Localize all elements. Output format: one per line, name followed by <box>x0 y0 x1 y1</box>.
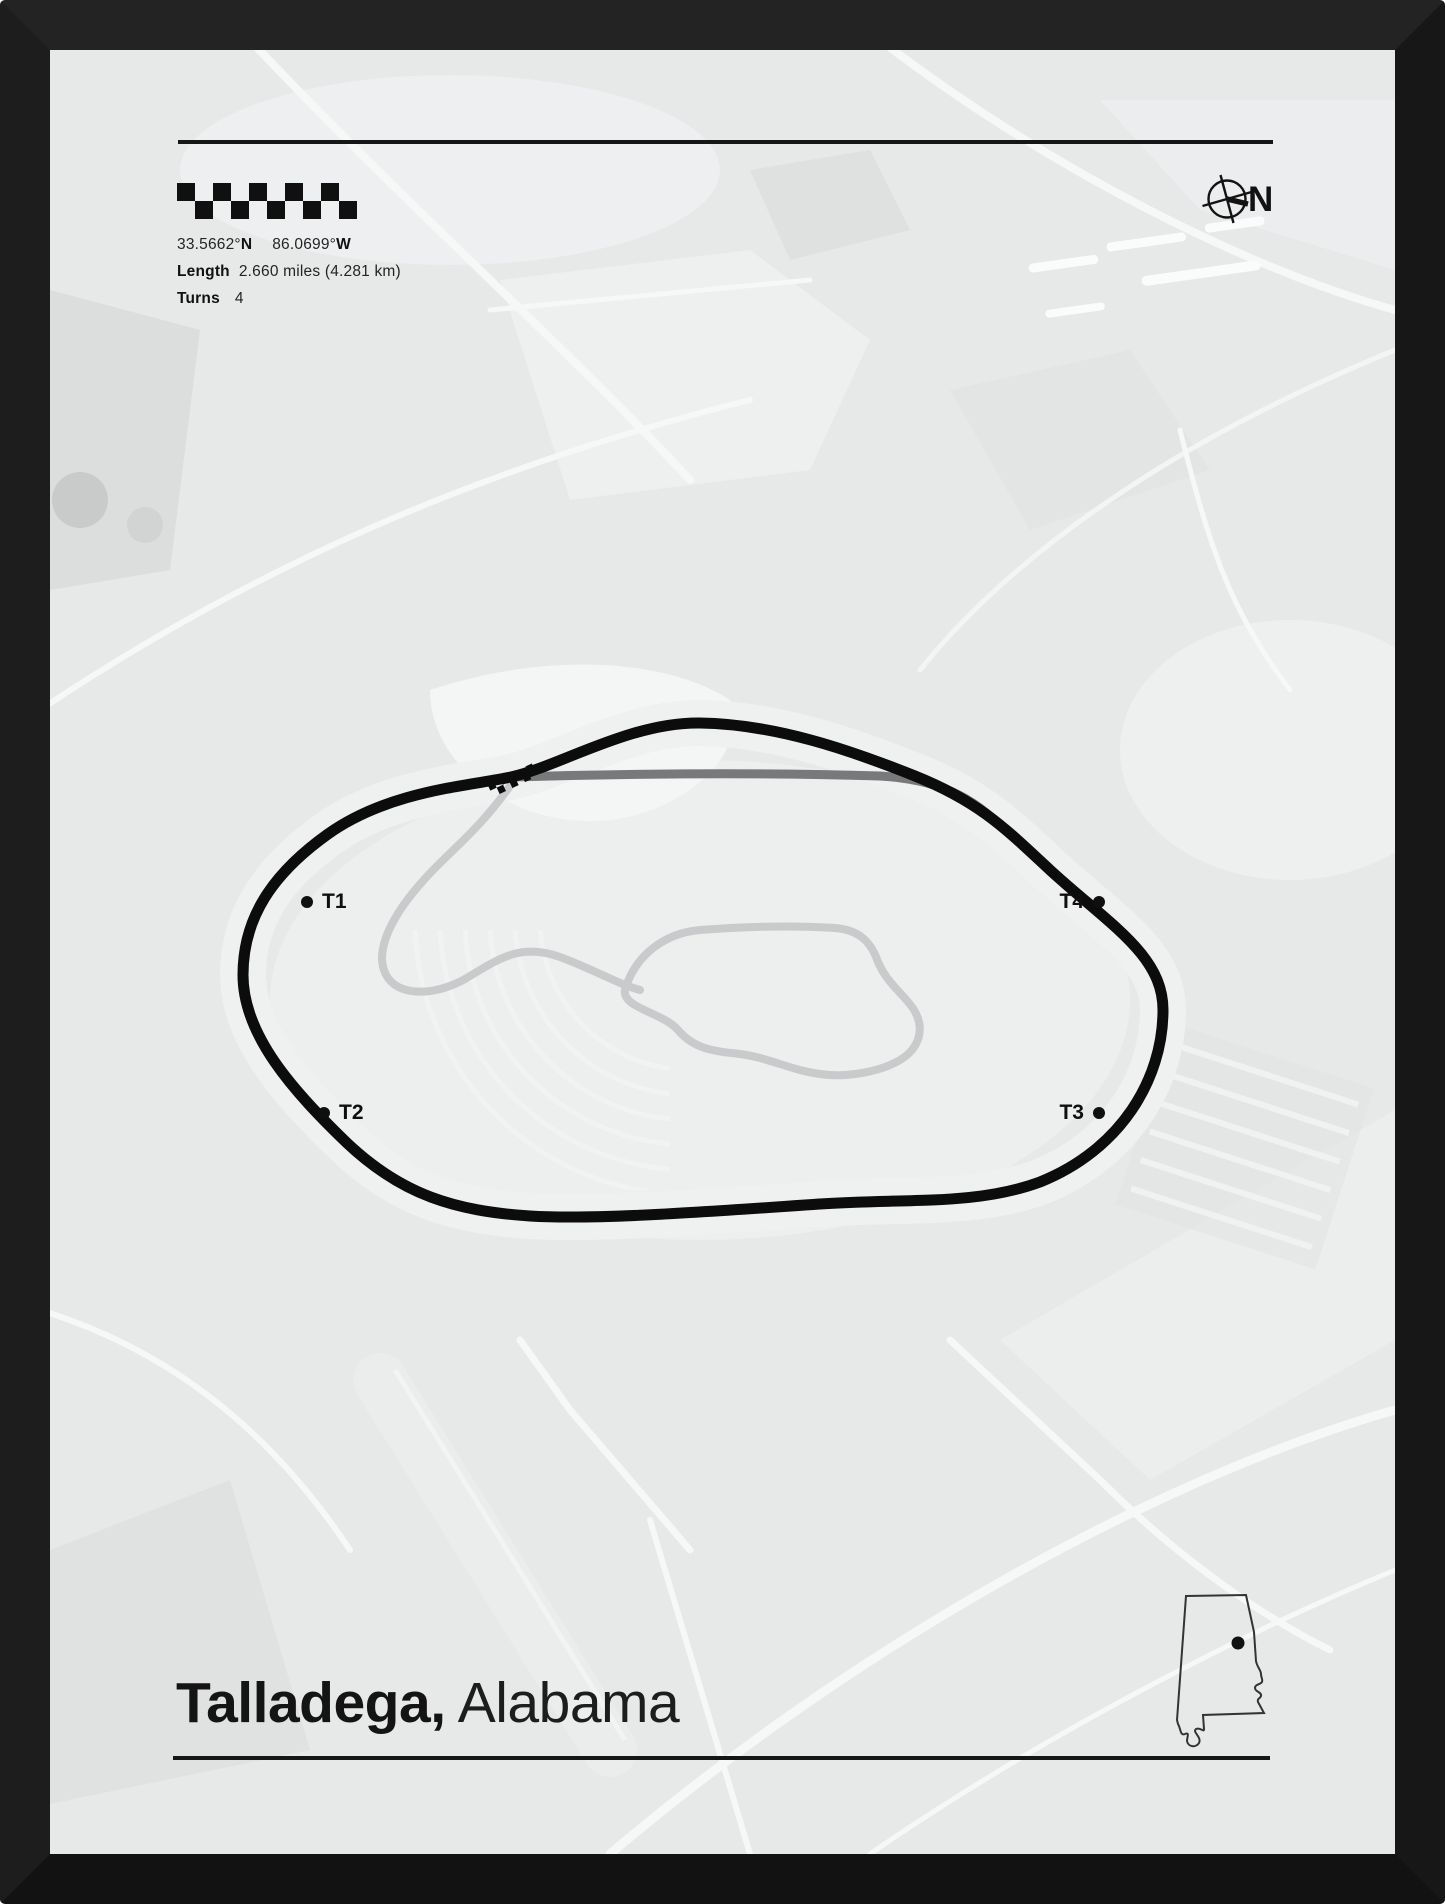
turn-label: T1 <box>322 890 347 914</box>
turns-value: 4 <box>235 290 244 307</box>
length-value: 2.660 miles (4.281 km) <box>239 263 401 280</box>
top-rule <box>178 140 1273 144</box>
length-row: Length2.660 miles (4.281 km) <box>177 258 401 285</box>
turn-marker-t4: T4 <box>1059 890 1105 914</box>
map-background <box>50 50 1395 1854</box>
turn-label: T2 <box>339 1101 364 1125</box>
turns-label: Turns <box>177 290 220 307</box>
turn-marker-t1: T1 <box>301 890 347 914</box>
compass-north-label: N <box>1248 180 1273 220</box>
latitude-value: 33.5662° <box>177 236 241 253</box>
track-stats: 33.5662°N86.0699°W Length2.660 miles (4.… <box>177 231 401 312</box>
title-track-name: Talladega, <box>176 1671 446 1735</box>
turn-marker-t2: T2 <box>318 1101 364 1125</box>
longitude-dir: W <box>336 236 351 253</box>
coordinates-row: 33.5662°N86.0699°W <box>177 231 401 258</box>
length-label: Length <box>177 263 230 280</box>
turn-dot-icon <box>1093 1107 1105 1119</box>
turn-dot-icon <box>301 896 313 908</box>
longitude-value: 86.0699° <box>272 236 336 253</box>
turn-label: T3 <box>1059 1101 1084 1125</box>
poster-title: Talladega, Alabama <box>176 1672 679 1735</box>
turn-dot-icon <box>318 1107 330 1119</box>
title-region: Alabama <box>446 1671 680 1735</box>
turn-marker-t3: T3 <box>1059 1101 1105 1125</box>
track-location-dot <box>1232 1637 1245 1650</box>
turn-dot-icon <box>1093 896 1105 908</box>
turn-label: T4 <box>1059 890 1084 914</box>
track-poster: 33.5662°N86.0699°W Length2.660 miles (4.… <box>50 50 1395 1854</box>
latitude-dir: N <box>241 236 252 253</box>
turns-row: Turns4 <box>177 285 401 312</box>
bottom-rule <box>173 1756 1270 1760</box>
